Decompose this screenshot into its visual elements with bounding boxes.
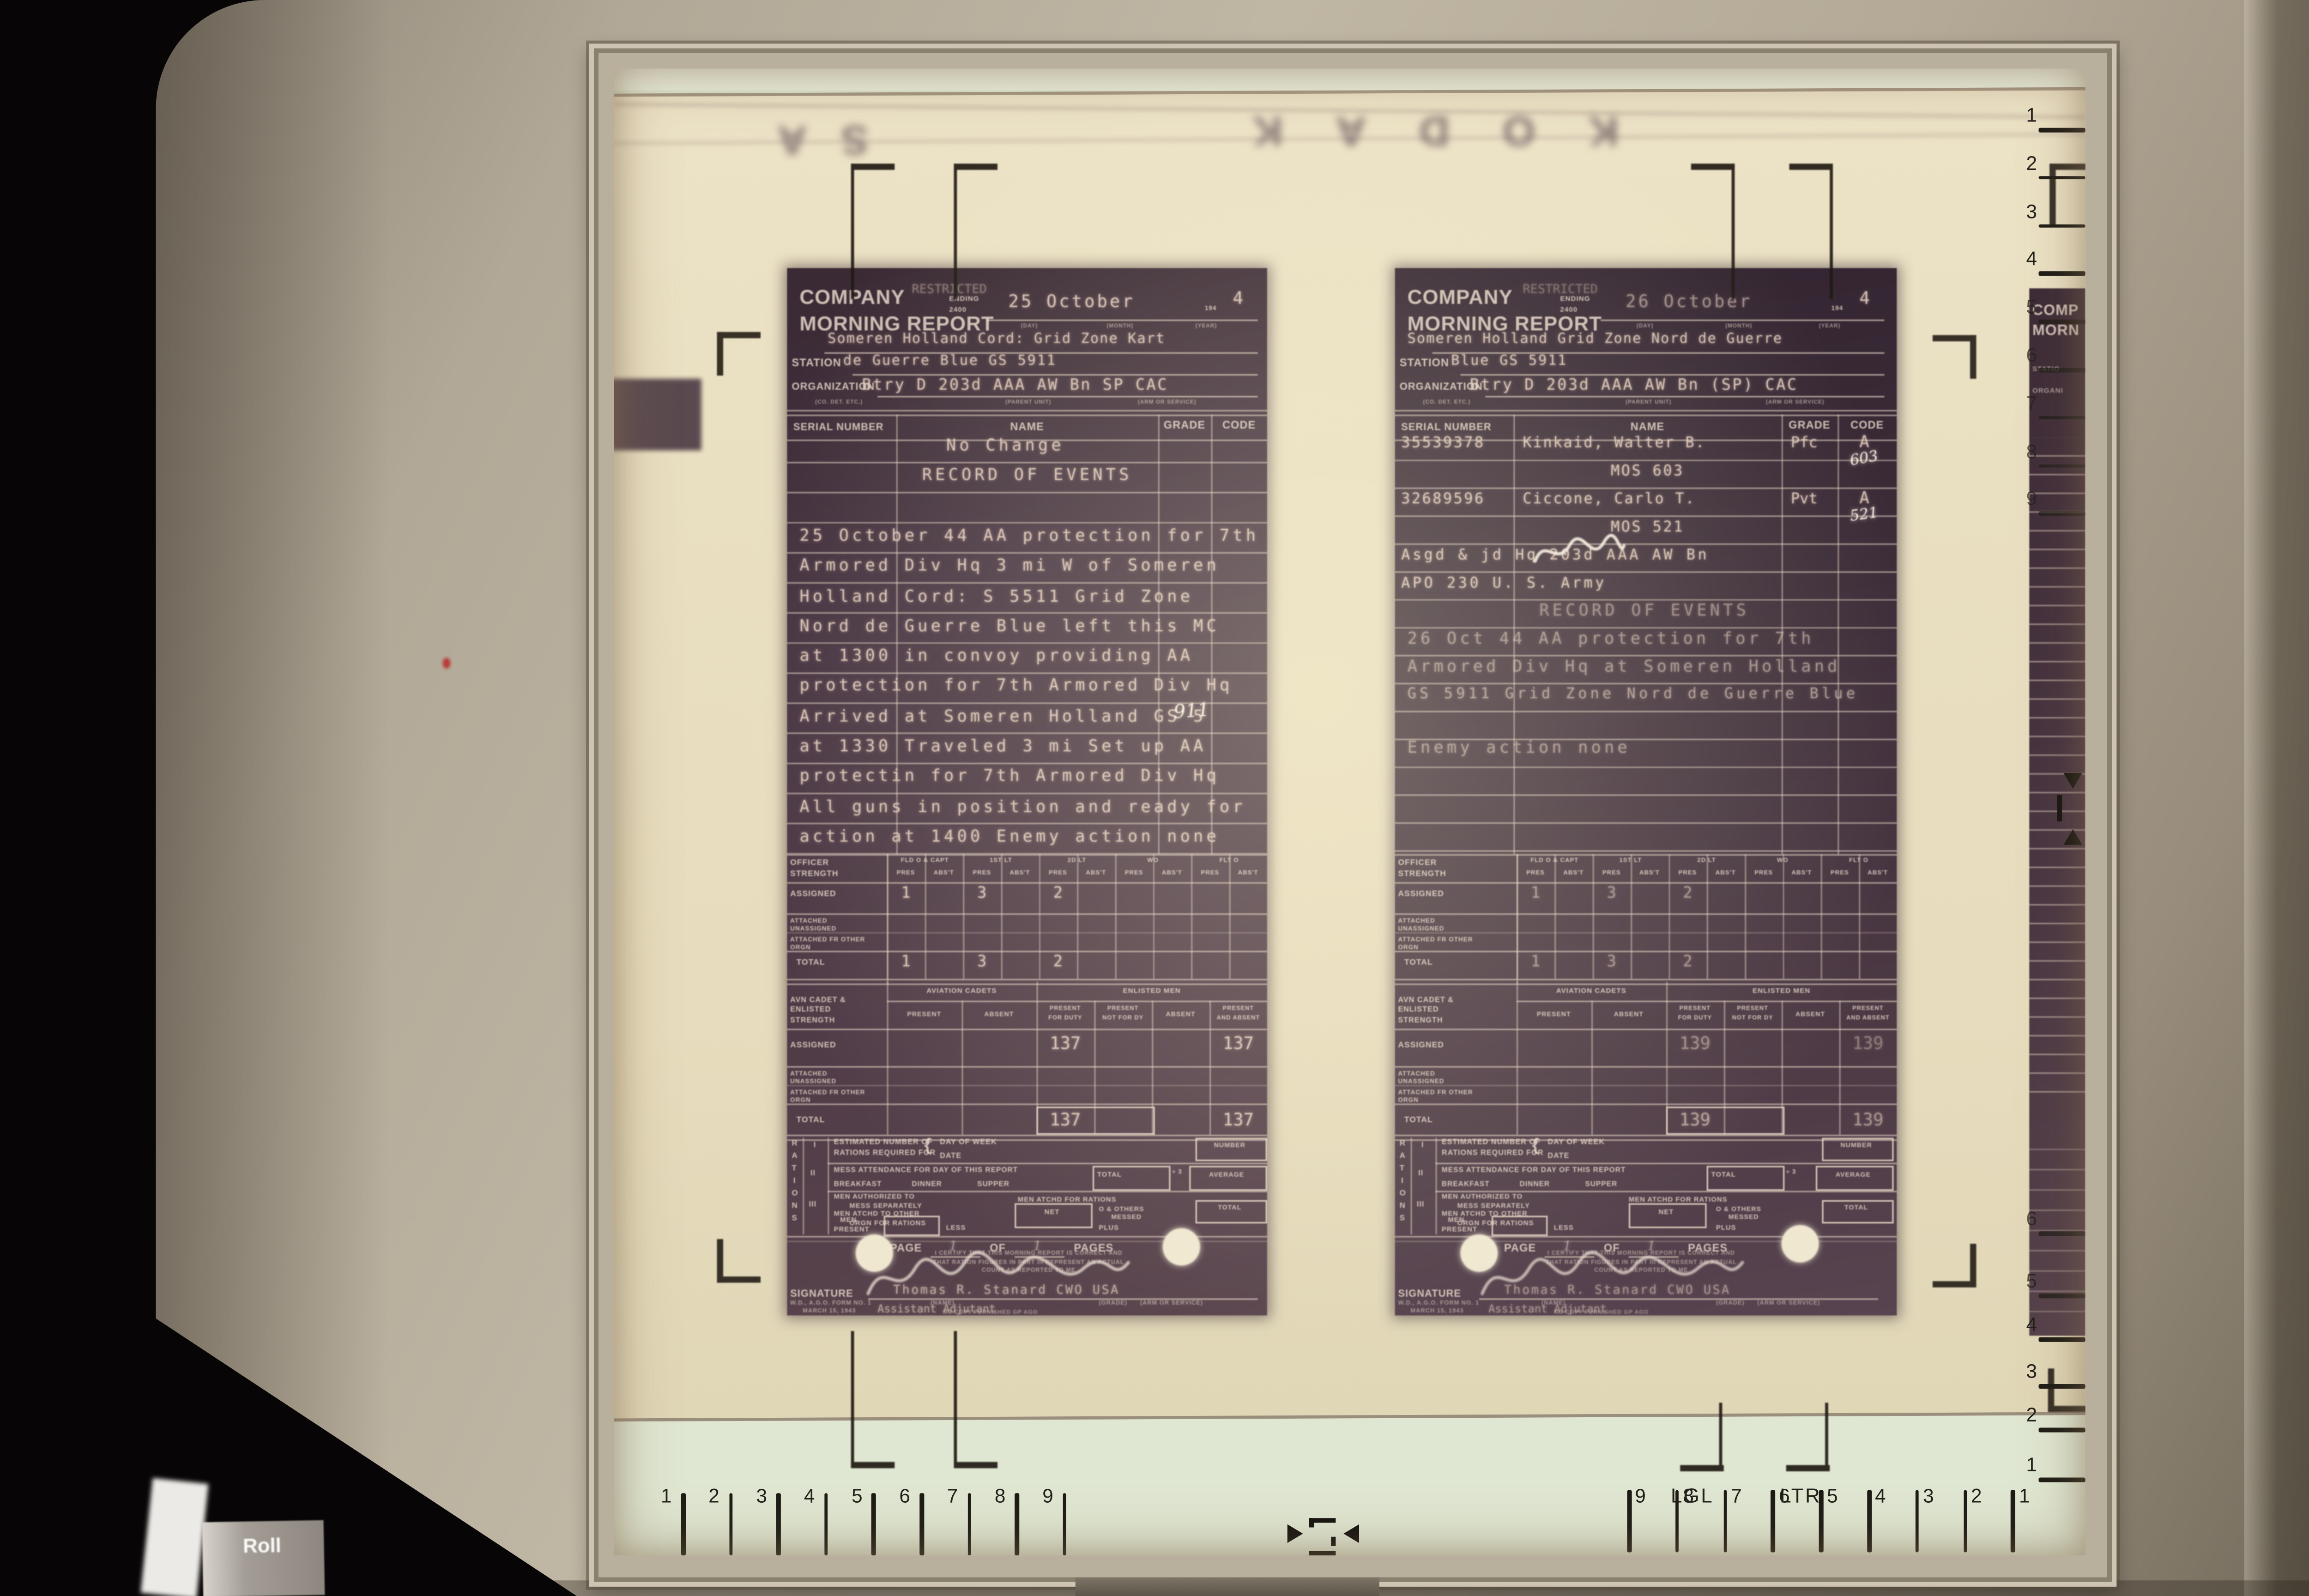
rations-letter: O (1400, 1191, 1406, 1199)
roster-grade: Pfc (1791, 436, 1818, 451)
signature-typed-name: Thomas R. Stanard CWO USA (893, 1284, 1120, 1297)
centering-icon-right (2057, 773, 2085, 845)
ruler-number: 1 (2019, 1487, 2030, 1506)
projection-screen: KODAK SA COMPANY MORNING REPORT RESTRICT… (614, 69, 2085, 1556)
ruler-number: 8 (1683, 1487, 1693, 1506)
assigned-label: ASSIGNED (1398, 892, 1444, 900)
total-label: TOTAL (797, 1118, 825, 1126)
record-line: 26 Oct 44 AA protection for 7th (1408, 631, 1814, 647)
total-label: TOTAL (1711, 1172, 1736, 1179)
abst-label: ABS'T (1631, 870, 1668, 876)
breakfast-label: BREAKFAST (834, 1181, 882, 1189)
handwritten-911: 911 (1173, 700, 1210, 721)
present-label: PRESENT (1517, 1011, 1591, 1018)
form-title-1: COMPANY (1408, 287, 1513, 307)
cap-grade-arm: (GRADE) (ARM OR SERVICE) (1099, 1301, 1203, 1307)
form-title-2: MORNING REPORT (799, 313, 994, 333)
rations-letter: A (1400, 1154, 1405, 1161)
est-line-2: RATIONS REQUIRED FOR (1442, 1151, 1544, 1158)
ruler-number: 9 (1042, 1487, 1053, 1506)
pnf-label: PRESENT (1094, 1007, 1152, 1013)
mess-attendance-label: MESS ATTENDANCE FOR DAY OF THIS REPORT (834, 1167, 1018, 1175)
men-present-box (1492, 1216, 1548, 1236)
ruler-number: 7 (1731, 1487, 1741, 1506)
centering-icon (1287, 1518, 1359, 1549)
ruler-number: 2 (708, 1487, 719, 1506)
ruler-number: 3 (2026, 202, 2037, 221)
record-line: Nord de Guerre Blue left this MC (799, 618, 1220, 635)
pfd-label: FOR DUTY (1666, 1016, 1724, 1022)
form-date: MARCH 15, 1943 (1410, 1309, 1463, 1315)
abst-label: ABS'T (1554, 870, 1592, 876)
roman-ii: II (810, 1172, 816, 1179)
crop-mark (2048, 1368, 2085, 1412)
total-label: TOTAL (1822, 1205, 1891, 1211)
others-messed-1: O & OTHERS (1099, 1206, 1144, 1213)
record-line: No Change (849, 438, 1161, 454)
ruler-number: 8 (995, 1487, 1005, 1506)
pres-label: PRES (1821, 870, 1859, 876)
less-label: LESS (1554, 1225, 1574, 1232)
total-label: TOTAL (797, 960, 825, 968)
officer-assigned-value: 2 (1668, 887, 1706, 902)
ruler-number: 2 (1971, 1487, 1982, 1506)
year-prefix: 194 (1205, 306, 1217, 312)
roster-mos: MOS 603 (1513, 465, 1782, 479)
form-date: MARCH 15, 1943 (803, 1309, 856, 1315)
ruler-number: 1 (2026, 1456, 2037, 1475)
station-line-2: de Guerre Blue GS 5911 (843, 356, 1057, 369)
ruler-number: 5 (2026, 298, 2037, 317)
others-messed-2: MESSED (1729, 1214, 1759, 1221)
abst-label: ABS'T (925, 870, 963, 876)
absent-label: ABSENT (961, 1011, 1036, 1018)
avn-strength-label: AVN CADET & ENLISTED STRENGTH (1398, 997, 1485, 1028)
roster-code: A (1859, 435, 1869, 451)
ruler-number: 1 (2026, 106, 2037, 126)
rations-letter: T (792, 1166, 797, 1174)
serial-header: SERIAL NUMBER (1401, 424, 1492, 434)
mess-attendance-label: MESS ATTENDANCE FOR DAY OF THIS REPORT (1442, 1167, 1626, 1175)
paa-label: AND ABSENT (1209, 1016, 1267, 1022)
red-indicator-speck (443, 658, 451, 669)
officer-assigned-value: 3 (1593, 887, 1631, 902)
present-label: PRESENT (1442, 1226, 1477, 1233)
record-line: protection for 7th Armored Div Hq (799, 678, 1233, 695)
pres-label: PRES (887, 870, 925, 876)
ruler-number: 1 (661, 1487, 671, 1506)
screen-top-strip (614, 69, 2085, 91)
enlisted-assigned-paa: 137 (1209, 1035, 1267, 1052)
record-line: Holland Cord: S 5511 Grid Zone (799, 588, 1193, 605)
form-number: W.D., A.G.O. FORM NO. 1 (790, 1301, 871, 1307)
col-group: 2D LT (1668, 857, 1745, 863)
aviation-cadets-header: AVIATION CADETS (887, 988, 1036, 995)
total-label: TOTAL (1196, 1205, 1264, 1211)
pfd-label: PRESENT (1666, 1007, 1724, 1013)
record-line: Arrived at Someren Holland GS 5 (799, 709, 1206, 725)
col-group: FLD O & CAPT (887, 857, 963, 863)
men-label: MEN (1448, 1217, 1464, 1224)
record-area: No Change RECORD OF EVENTS 25 October 44… (787, 433, 1267, 854)
cap-arm: (ARM OR SERVICE) (1138, 400, 1197, 406)
station-label: STATION (792, 358, 841, 369)
signature-scribble (862, 1244, 1135, 1306)
cap-co: (CO. DET. ETC.) (1423, 400, 1470, 406)
record-line: at 1300 in convoy providing AA (799, 648, 1193, 665)
crop-mark (717, 1239, 761, 1283)
record-line: Enemy action none (1408, 740, 1631, 756)
aviation-cadets-header: AVIATION CADETS (1517, 988, 1666, 995)
divide-3-label: ÷ 3 (1172, 1169, 1182, 1175)
attached-unassigned-label: ATTACHED UNASSIGNED (790, 1069, 868, 1086)
abst-label: ABS'T (1783, 870, 1820, 876)
officer-strength-label: OFFICER STRENGTH (790, 859, 877, 881)
signature-scribble (1476, 1244, 1749, 1306)
roman-i: I (814, 1144, 816, 1151)
ruler-number: 4 (2026, 1316, 2037, 1335)
officer-total-value: 3 (1593, 955, 1631, 971)
cap-year: (YEAR) (1196, 324, 1217, 330)
rations-letter: S (1400, 1216, 1405, 1224)
name-header: NAME (1513, 423, 1782, 434)
est-line-1: ESTIMATED NUMBER OF (1442, 1141, 1541, 1149)
absent-label: ABSENT (1591, 1011, 1666, 1018)
organization-value: Btry D 203d AAA AW Bn SP CAC (862, 379, 1168, 394)
absent-label: ABSENT (1152, 1011, 1209, 1018)
enlisted-assigned-pfd: 137 (1036, 1035, 1094, 1052)
number-label: NUMBER (1196, 1143, 1264, 1149)
officer-total-value: 1 (887, 955, 925, 971)
record-line: All guns in position and ready for (799, 799, 1245, 815)
ruler-number: 9 (1635, 1487, 1645, 1506)
col-group: FLD O & CAPT (1517, 857, 1593, 863)
scene: Roll KODAK SA COMPANY MORNING REPORT RES… (0, 0, 2309, 1596)
roster-serial: 32689596 (1401, 493, 1485, 508)
attached-unassigned-label: ATTACHED UNASSIGNED (1398, 917, 1476, 933)
col-group: 2D LT (1039, 857, 1115, 863)
cap-parent: (PARENT UNIT) (1626, 400, 1672, 406)
abst-label: ABS'T (1001, 870, 1039, 876)
day-of-week-label: DAY OF WEEK (1547, 1141, 1605, 1149)
handwritten-code: 603 (1849, 450, 1880, 469)
record-line: action at 1400 Enemy action none (799, 829, 1220, 845)
col-group: WO (1745, 857, 1821, 863)
net-label: NET (1015, 1209, 1089, 1216)
col-group: 1ST LT (963, 857, 1039, 863)
abst-label: ABS'T (1707, 870, 1745, 876)
attached-fr-label: ATTACHED FR OTHER ORGN (790, 935, 871, 952)
others-messed-2: MESSED (1111, 1214, 1142, 1221)
station-line-1: Someren Holland Grid Zone Nord de Guerre (1408, 333, 1783, 347)
cap-day: (DAY) (1021, 324, 1038, 330)
date-label: DATE (1547, 1155, 1569, 1162)
film-edge-brand-text: KODAK (1082, 106, 1736, 155)
brace: { (924, 1138, 931, 1155)
handwritten-scribble (1529, 530, 1629, 574)
record-line: protectin for 7th Armored Div Hq (799, 769, 1220, 785)
organization-label: ORGANIZATION (792, 383, 875, 393)
auth-line-2: MESS SEPARATELY (849, 1203, 922, 1209)
cap-month: (MONTH) (1725, 324, 1752, 330)
rations-letter: O (792, 1191, 798, 1199)
ruler-number: 6 (2026, 1209, 2037, 1229)
ruler-number: 6 (1779, 1487, 1789, 1506)
less-label: LESS (946, 1225, 966, 1232)
supper-label: SUPPER (1585, 1181, 1617, 1189)
average-label: AVERAGE (1189, 1172, 1264, 1179)
dinner-label: DINNER (1520, 1181, 1550, 1189)
number-label: NUMBER (1822, 1143, 1891, 1149)
roman-iii: III (1417, 1203, 1425, 1211)
pnf-label: NOT FOR DY (1724, 1016, 1782, 1022)
enlisted-total-pfd: 137 (1036, 1111, 1094, 1128)
record-line: at 1330 Traveled 3 mi Set up AA (799, 739, 1206, 755)
pres-label: PRES (1745, 870, 1783, 876)
col-group: WO (1115, 857, 1191, 863)
pfd-label: FOR DUTY (1036, 1016, 1094, 1022)
cap-co: (CO. DET. ETC.) (815, 400, 863, 406)
serial-header: SERIAL NUMBER (793, 424, 884, 434)
ruler-number: 3 (756, 1487, 767, 1506)
footer-note: NO COPY FURNISHED GP AGO (943, 1310, 1038, 1316)
abst-label: ABS'T (1859, 870, 1897, 876)
pres-label: PRES (1593, 870, 1631, 876)
present-label: PRESENT (887, 1011, 961, 1018)
paa-label: AND ABSENT (1839, 1016, 1897, 1022)
station-line-2: Blue GS 5911 (1451, 356, 1567, 369)
officer-assigned-value: 1 (887, 887, 925, 902)
col-group: FLT O (1821, 857, 1897, 863)
est-line-2: RATIONS REQUIRED FOR (834, 1151, 936, 1158)
record-line: Armored Div Hq 3 mi W of Someren (799, 558, 1220, 574)
crop-mark (1933, 1244, 1977, 1288)
brace: { (1532, 1138, 1540, 1155)
signature-typed-name: Thomas R. Stanard CWO USA (1504, 1284, 1731, 1297)
ruler-number: 6 (2026, 346, 2037, 365)
film-carrier-slot (1076, 1578, 1379, 1596)
record-line: RECORD OF EVENTS (1442, 603, 1847, 619)
assigned-label: ASSIGNED (790, 892, 836, 900)
plus-label: PLUS (1716, 1225, 1736, 1232)
cap-arm: (ARM OR SERVICE) (1766, 400, 1825, 406)
ruler-number: 3 (2026, 1362, 2037, 1382)
ruler-number: 4 (804, 1487, 815, 1506)
signature-label: SIGNATURE (1398, 1291, 1461, 1301)
enlisted-total-pfd: 139 (1666, 1111, 1724, 1128)
officer-assigned-value: 2 (1039, 887, 1077, 902)
date-label: DATE (940, 1155, 961, 1162)
cap-year: (YEAR) (1819, 324, 1841, 330)
officer-assigned-value: 3 (963, 887, 1001, 902)
abst-label: ABS'T (1229, 870, 1267, 876)
signature-label: SIGNATURE (790, 1291, 853, 1301)
adjacent-frame-fragment (614, 379, 701, 450)
total-label: TOTAL (1404, 1118, 1433, 1126)
enlisted-total-paa: 137 (1209, 1111, 1267, 1128)
roster-name: Ciccone, Carlo T. (1523, 493, 1695, 508)
rations-letter: R (1400, 1141, 1405, 1149)
pnf-label: PRESENT (1724, 1007, 1782, 1013)
record-line: Armored Div Hq at Someren Holland (1408, 659, 1841, 676)
attached-fr-label: ATTACHED FR OTHER ORGN (1398, 1088, 1479, 1105)
roman-i: I (1421, 1144, 1424, 1151)
rations-letter: A (792, 1154, 798, 1161)
crop-mark (2049, 163, 2085, 226)
dinner-label: DINNER (912, 1181, 942, 1189)
col-group: 1ST LT (1593, 857, 1669, 863)
roster-code: A (1859, 491, 1869, 507)
paa-label: PRESENT (1839, 1007, 1897, 1013)
supper-label: SUPPER (977, 1181, 1009, 1189)
enlisted-men-header: ENLISTED MEN (1666, 988, 1897, 995)
men-label: MEN (840, 1217, 857, 1224)
ruler-number: 2 (2026, 1406, 2037, 1425)
pres-label: PRES (1191, 870, 1229, 876)
ruler-number: 5 (852, 1487, 862, 1506)
roster-grade: Pvt (1791, 493, 1818, 508)
record-area: 35539378 Kinkaid, Walter B. Pfc A 603 MO… (1395, 433, 1897, 854)
hour-label: 2400 (1560, 307, 1578, 314)
total-label: TOTAL (1097, 1172, 1122, 1179)
roster-name: Kinkaid, Walter B. (1523, 436, 1705, 451)
film-roll-box: Roll (202, 1520, 325, 1596)
avn-strength-label: AVN CADET & ENLISTED STRENGTH (790, 997, 877, 1028)
roman-iii: III (809, 1203, 817, 1211)
pfd-label: PRESENT (1036, 1007, 1094, 1013)
ruler-number: 7 (947, 1487, 958, 1506)
ruler-number: 7 (2026, 394, 2037, 413)
breakfast-label: BREAKFAST (1442, 1181, 1490, 1189)
roman-ii: II (1418, 1172, 1423, 1179)
morning-report-left: COMPANY MORNING REPORT RESTRICTED ENDING… (787, 268, 1267, 1316)
code-header: CODE (1838, 421, 1897, 432)
station-line-1: Someren Holland Cord: Grid Zone Kart (828, 333, 1165, 347)
ruler-number: 2 (2026, 154, 2037, 173)
roll-label: Roll (243, 1533, 282, 1557)
average-label: AVERAGE (1816, 1172, 1891, 1179)
pres-label: PRES (1517, 870, 1554, 876)
enlisted-men-header: ENLISTED MEN (1036, 988, 1267, 995)
film-roll-box-glow (141, 1478, 209, 1596)
name-header: NAME (896, 423, 1158, 434)
assigned-label: ASSIGNED (1398, 1043, 1444, 1051)
rations-letter: R (792, 1141, 798, 1149)
ruler-number: 6 (899, 1487, 910, 1506)
ruler-number: 4 (1875, 1487, 1886, 1506)
rations-letter: T (1400, 1166, 1404, 1174)
col-group: FLT O (1191, 857, 1267, 863)
rations-letter: N (792, 1203, 798, 1211)
organization-value: Btry D 203d AAA AW Bn (SP) CAC (1470, 379, 1798, 394)
pres-label: PRES (1115, 870, 1153, 876)
attached-unassigned-label: ATTACHED UNASSIGNED (1398, 1069, 1476, 1086)
attached-fr-label: ATTACHED FR OTHER ORGN (1398, 935, 1479, 952)
others-messed-1: O & OTHERS (1716, 1206, 1761, 1213)
divide-3-label: ÷ 3 (1786, 1169, 1796, 1175)
film-edge-safety-text: SA (736, 115, 876, 164)
plus-label: PLUS (1099, 1225, 1119, 1232)
rations-letter: N (1400, 1203, 1405, 1211)
handwritten-code: 521 (1849, 506, 1879, 525)
record-line: GS 5911 Grid Zone Nord de Guerre Blue (1408, 687, 1858, 702)
auth-line-1: MEN AUTHORIZED TO (1442, 1194, 1523, 1201)
form-title-2: MORNING REPORT (1408, 313, 1602, 333)
station-label: STATION (1400, 358, 1449, 369)
men-present-box (884, 1216, 940, 1236)
est-line-1: ESTIMATED NUMBER OF (834, 1141, 933, 1149)
ruler-number: 9 (2026, 490, 2037, 509)
present-label: PRESENT (834, 1226, 870, 1233)
morning-report-right: COMPANY MORNING REPORT RESTRICTED ENDING… (1395, 268, 1897, 1316)
cap-day: (DAY) (1637, 324, 1654, 330)
record-line: 25 October 44 AA protection for 7th (799, 528, 1259, 544)
ruler-number: 8 (2026, 442, 2037, 461)
footer-note: NO COPY FURNISHED GP AGO (1554, 1310, 1649, 1316)
attached-fr-label: ATTACHED FR OTHER ORGN (790, 1088, 871, 1105)
machine-right-shade (2244, 0, 2309, 1596)
form-title-2-fragment: MORN (2032, 324, 2079, 339)
photo-of-microfilm-reader: Roll KODAK SA COMPANY MORNING REPORT RES… (0, 0, 2309, 1596)
attached-unassigned-label: ATTACHED UNASSIGNED (790, 917, 868, 933)
organization-label: ORGANIZATION (1400, 383, 1483, 393)
rations-letter: S (792, 1216, 797, 1224)
cap-parent: (PARENT UNIT) (1005, 400, 1052, 406)
crop-mark (717, 332, 761, 376)
abst-label: ABS'T (1153, 870, 1191, 876)
paa-label: PRESENT (1209, 1007, 1267, 1013)
enlisted-assigned-paa: 139 (1839, 1035, 1897, 1052)
officer-total-value: 2 (1039, 955, 1077, 971)
officer-total-value: 2 (1668, 955, 1706, 971)
grade-header: GRADE (1782, 421, 1838, 432)
hour-label: 2400 (949, 307, 967, 314)
year-prefix: 194 (1831, 306, 1844, 312)
enlisted-total-paa: 139 (1839, 1111, 1897, 1128)
auth-line-1: MEN AUTHORIZED TO (834, 1194, 915, 1201)
absent-label: ABSENT (1782, 1011, 1839, 1018)
net-label: NET (1629, 1209, 1704, 1216)
apo-line: APO 230 U. S. Army (1401, 577, 1607, 592)
report-year: 4 (1859, 290, 1869, 307)
assigned-label: ASSIGNED (790, 1043, 836, 1051)
enlisted-assigned-pfd: 139 (1666, 1035, 1724, 1052)
report-year: 4 (1233, 290, 1243, 307)
ruler-number: 4 (2026, 250, 2037, 269)
total-label: TOTAL (1404, 960, 1433, 968)
day-of-week-label: DAY OF WEEK (940, 1141, 997, 1149)
form-title-1-fragment: COMP (2032, 304, 2079, 319)
report-date: 25 October (1009, 293, 1135, 310)
pnf-label: NOT FOR DY (1094, 1016, 1152, 1022)
cap-grade-arm: (GRADE) (ARM OR SERVICE) (1716, 1301, 1820, 1307)
officer-strength-label: OFFICER STRENGTH (1398, 859, 1485, 881)
pres-label: PRES (963, 870, 1001, 876)
officer-total-value: 1 (1517, 955, 1554, 971)
officer-assigned-value: 1 (1517, 887, 1554, 902)
code-header: CODE (1211, 421, 1267, 432)
roster-serial: 35539378 (1401, 436, 1485, 451)
ruler-number: 5 (1827, 1487, 1838, 1506)
rations-letter: I (793, 1179, 796, 1186)
ending-label: ENDING (1560, 296, 1590, 303)
form-number: W.D., A.G.O. FORM NO. 1 (1398, 1301, 1479, 1307)
pres-label: PRES (1668, 870, 1706, 876)
ruler-number: 5 (2026, 1272, 2037, 1291)
ruler-number: 3 (1923, 1487, 1934, 1506)
partial-ruled-lines-2 (2029, 1130, 2085, 1317)
officer-total-value: 3 (963, 955, 1001, 971)
